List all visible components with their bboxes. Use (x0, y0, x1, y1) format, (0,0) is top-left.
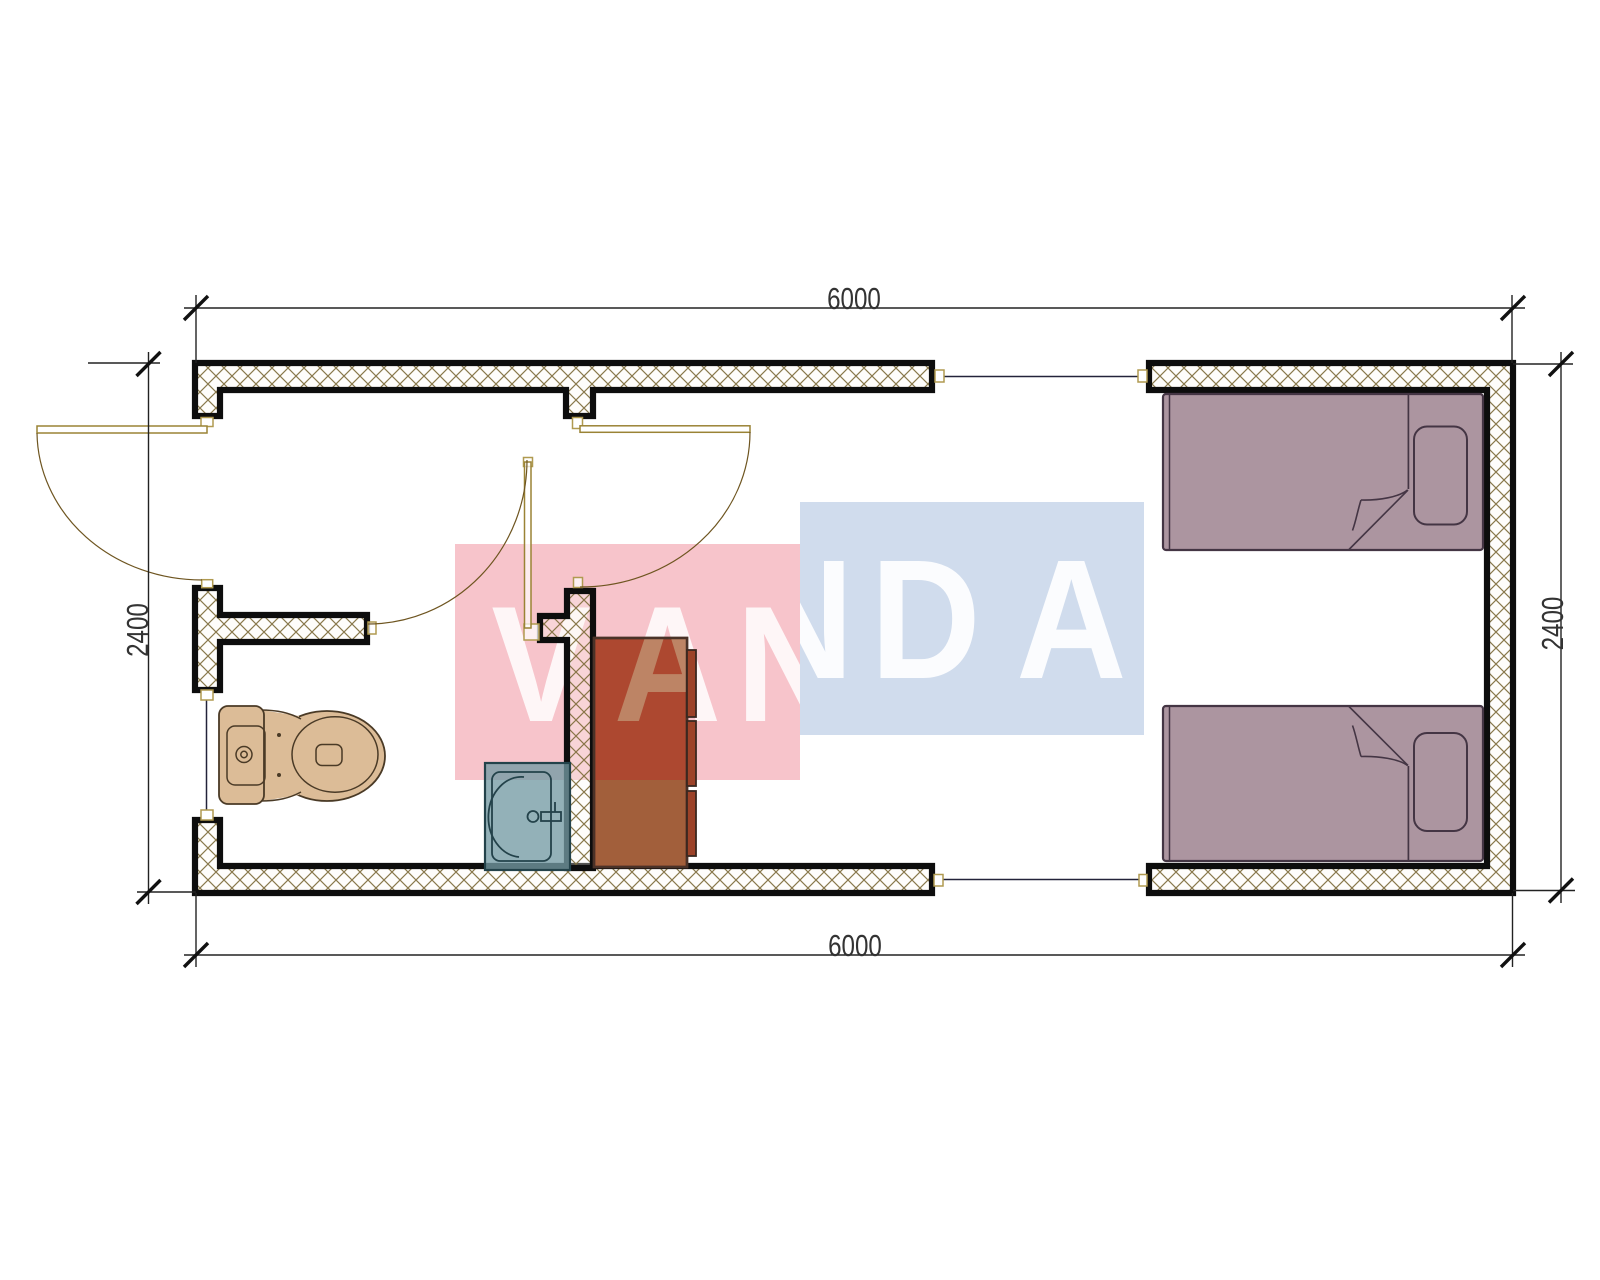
svg-text:6000: 6000 (828, 928, 882, 963)
svg-text:2400: 2400 (120, 603, 155, 657)
svg-text:2400: 2400 (1535, 597, 1570, 651)
svg-text:6000: 6000 (827, 281, 881, 316)
